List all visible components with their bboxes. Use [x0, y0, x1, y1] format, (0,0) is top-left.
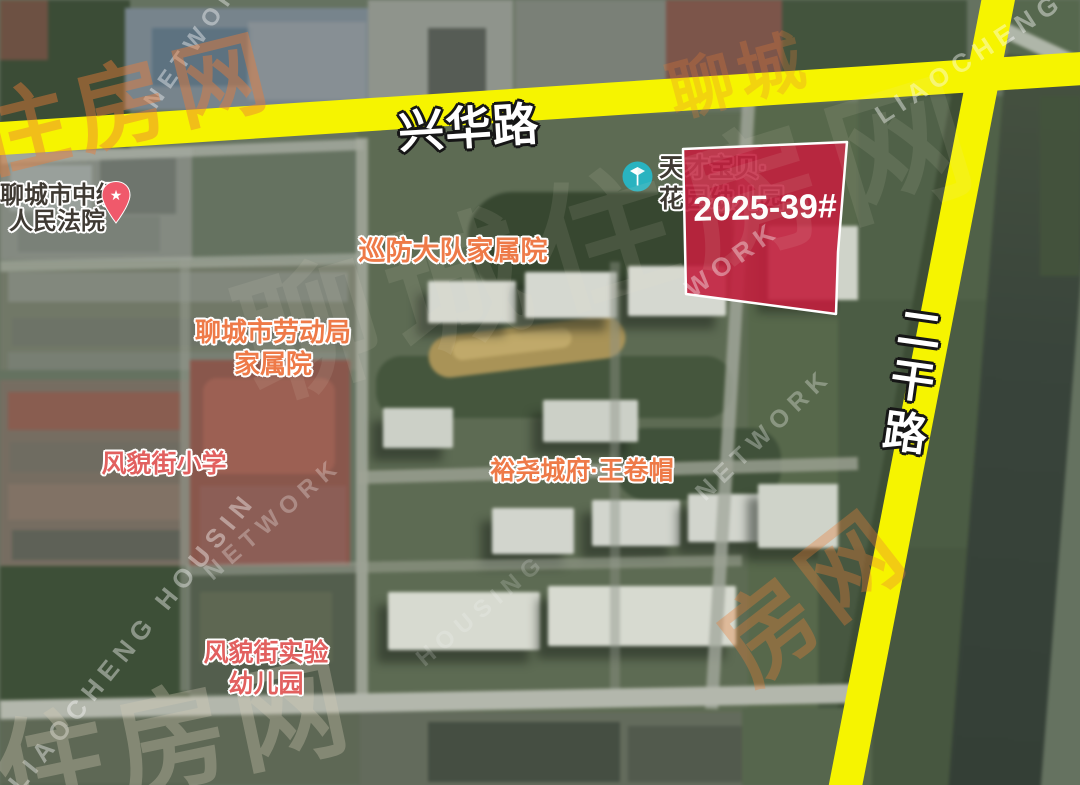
- poi-label-yuyao-chengfu: 裕尧城府·王卷帽: [482, 456, 682, 487]
- poi-label-court: 聊城市中级 人民法院: [0, 183, 114, 235]
- poi-label-line: 家属院: [190, 348, 356, 380]
- satellite-map: 天才宝贝· 花园幼儿园 2025-39# NETWORK LIAOCHENG H…: [0, 0, 1080, 785]
- poi-label-fengmao-primary-school: 风貌街小学: [100, 449, 228, 480]
- poi-label-labor-bureau-compound: 聊城市劳动局 家属院: [190, 316, 356, 380]
- poi-label-line: 聊城市中级: [0, 183, 114, 209]
- poi-label-line: 幼儿园: [184, 669, 348, 700]
- poi-label-line: 人民法院: [0, 209, 114, 235]
- poi-label-xunfang-compound: 巡防大队家属院: [352, 235, 554, 269]
- parcel-label: 2025-39#: [691, 187, 840, 230]
- poi-label-fengmao-exp-kindergarten: 风貌街实验 幼儿园: [184, 638, 348, 700]
- poi-label-line: 聊城市劳动局: [190, 316, 356, 348]
- star-pin-icon: ★: [100, 180, 132, 224]
- svg-text:★: ★: [110, 187, 123, 203]
- poi-label-line: 风貌街实验: [184, 638, 348, 669]
- road-label-xinghua: 兴华路: [396, 88, 541, 162]
